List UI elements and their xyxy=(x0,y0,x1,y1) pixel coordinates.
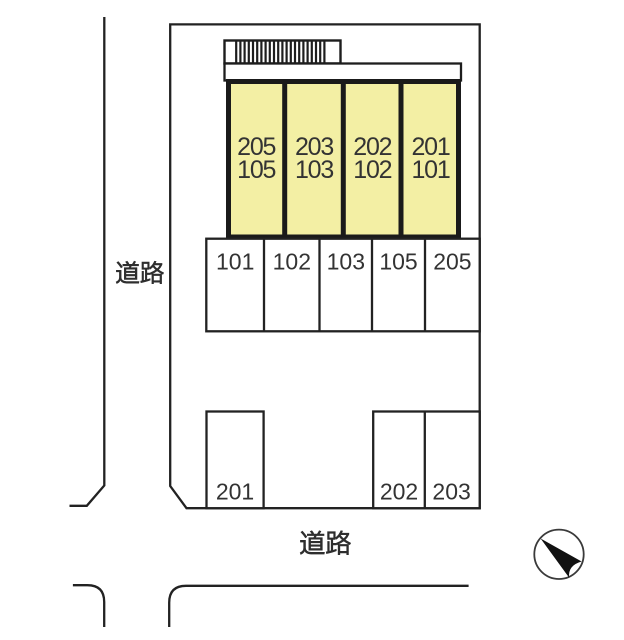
svg-text:201: 201 xyxy=(216,479,254,505)
svg-text:105: 105 xyxy=(379,249,417,275)
svg-text:202102: 202102 xyxy=(353,133,391,184)
svg-text:205105: 205105 xyxy=(237,133,275,184)
svg-text:201101: 201101 xyxy=(411,133,449,184)
svg-text:203103: 203103 xyxy=(295,133,333,184)
svg-text:102: 102 xyxy=(273,249,311,275)
svg-text:103: 103 xyxy=(327,249,365,275)
svg-text:202: 202 xyxy=(380,479,418,505)
svg-text:101: 101 xyxy=(216,249,254,275)
svg-text:203: 203 xyxy=(432,479,470,505)
svg-text:205: 205 xyxy=(433,249,471,275)
